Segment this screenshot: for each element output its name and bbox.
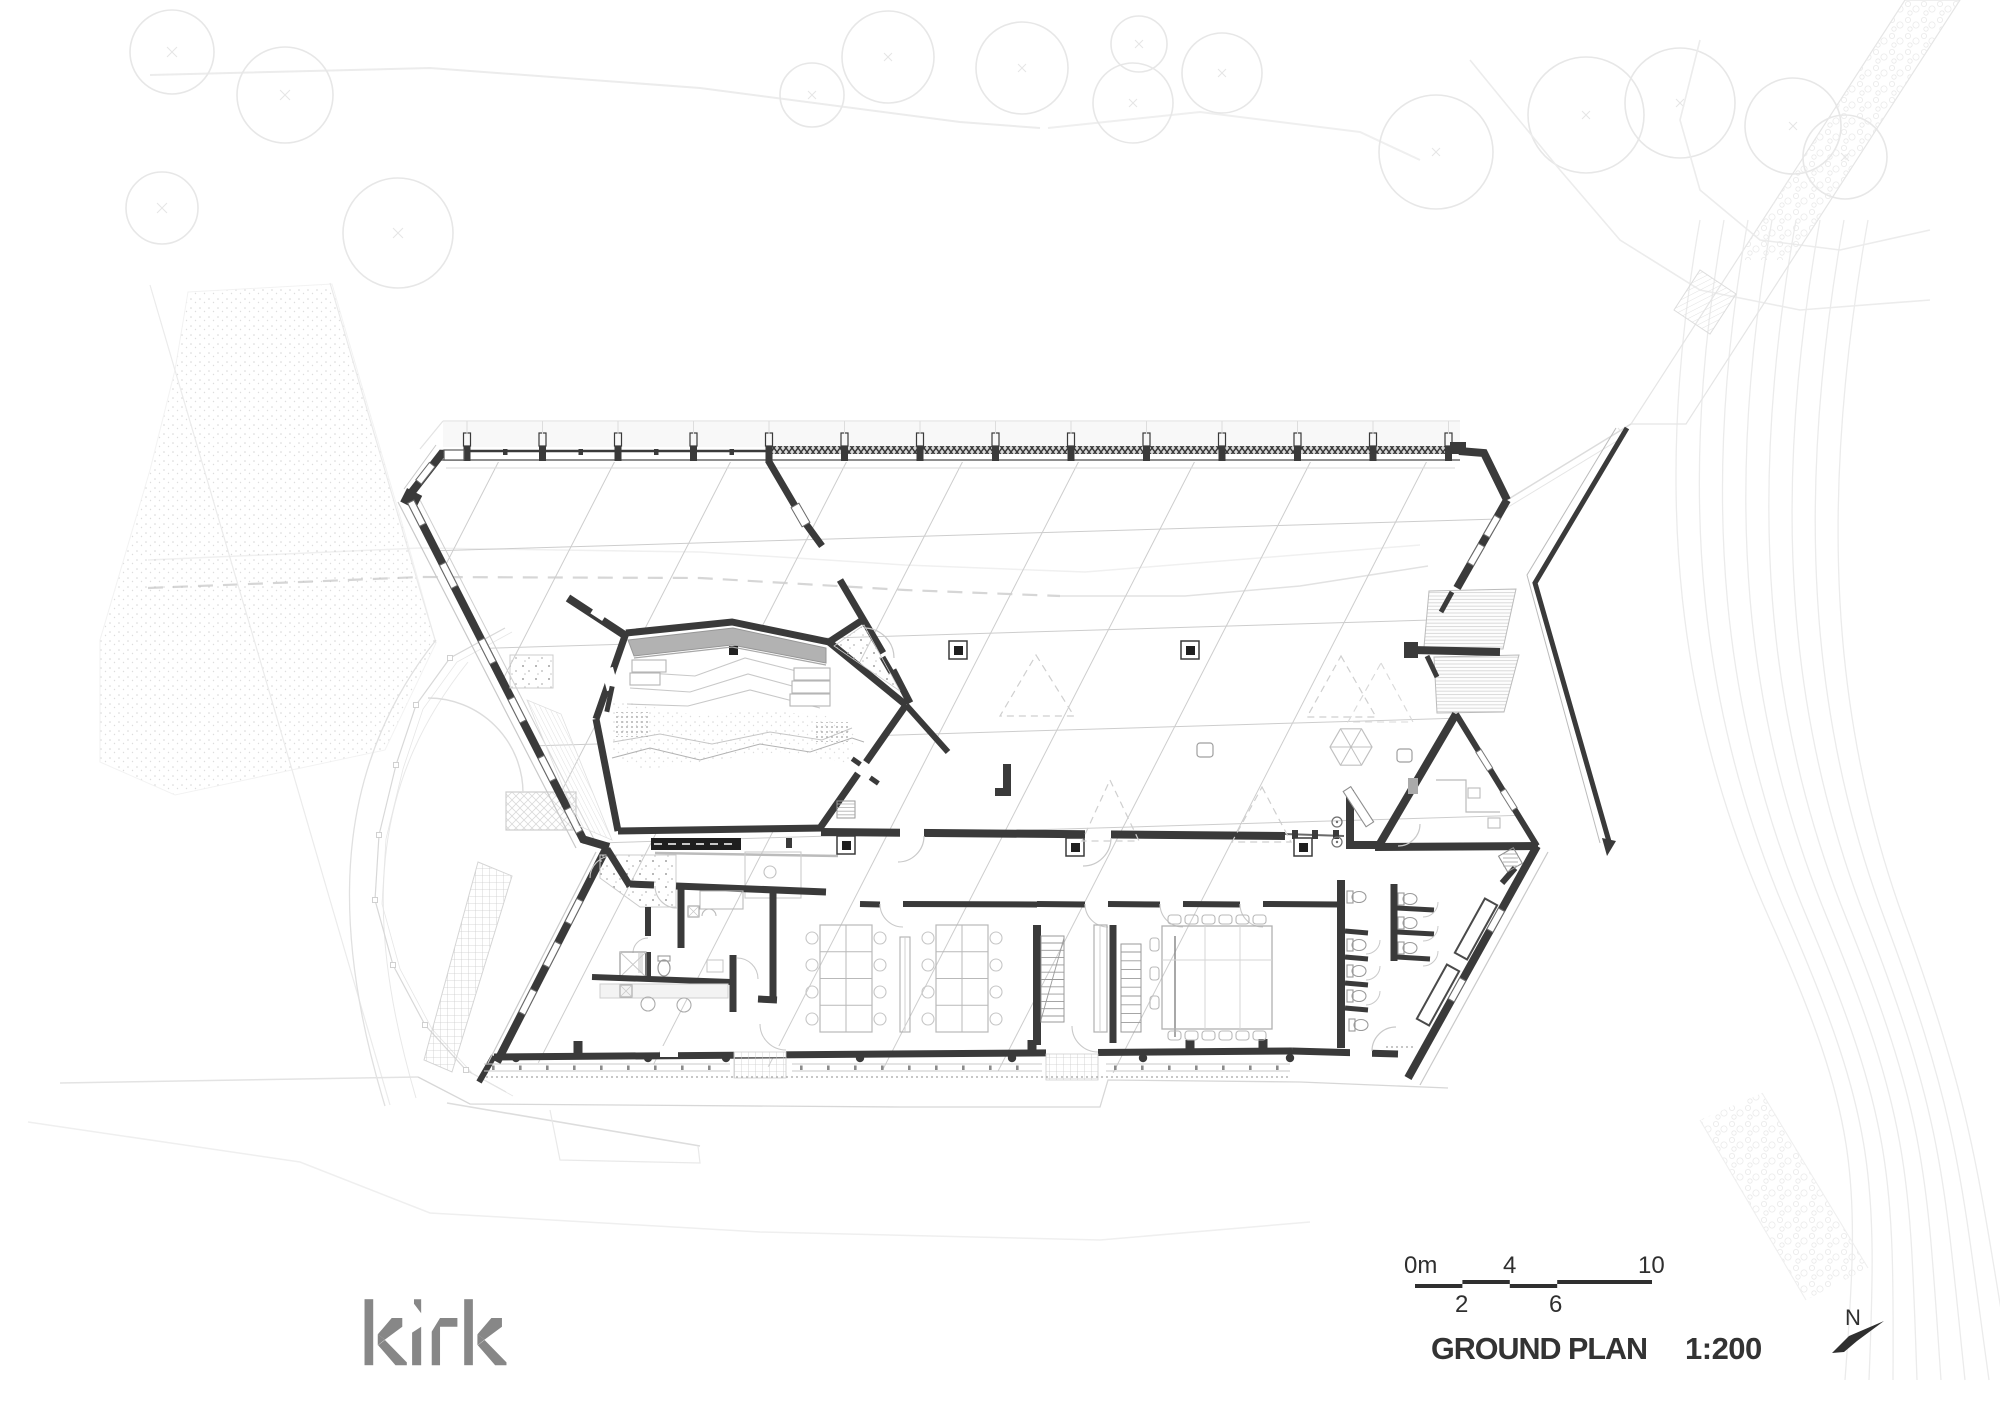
svg-text:N: N <box>1845 1305 1861 1330</box>
svg-text:4: 4 <box>1503 1252 1516 1279</box>
svg-text:2: 2 <box>1455 1291 1468 1318</box>
svg-text:10: 10 <box>1638 1252 1665 1279</box>
svg-text:GROUND PLAN: GROUND PLAN <box>1431 1332 1647 1366</box>
svg-text:1:200: 1:200 <box>1685 1331 1762 1366</box>
svg-text:6: 6 <box>1549 1291 1562 1318</box>
svg-text:0m: 0m <box>1404 1252 1437 1279</box>
